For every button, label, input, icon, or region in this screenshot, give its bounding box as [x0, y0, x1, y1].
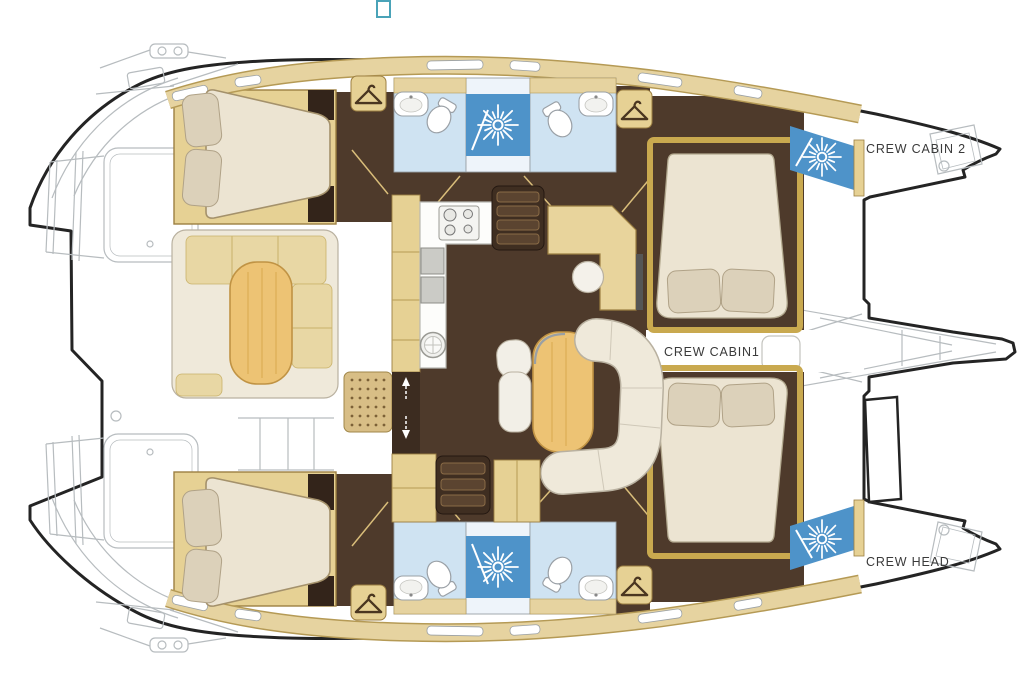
pillow: [721, 383, 775, 428]
pillow: [182, 149, 223, 208]
stool: [573, 262, 604, 293]
anchor-locker-outline: [865, 397, 901, 502]
cockpit-table: [230, 262, 292, 384]
pillow: [667, 383, 721, 428]
mast-icon: [377, 1, 390, 17]
crew-cabin-2-label: CREW CABIN 2: [866, 142, 966, 156]
pillow: [181, 92, 222, 147]
sink-icon: [394, 576, 428, 600]
starboard-companionway-stairs: [436, 456, 490, 514]
fridge-icon: [421, 248, 444, 274]
shower-cell: [466, 536, 530, 598]
pillow: [667, 269, 721, 314]
sink-icon: [394, 92, 428, 116]
pillow: [181, 548, 222, 603]
starboard-bathrooms: [394, 522, 616, 614]
pillow: [182, 489, 223, 548]
port-companionway-stairs: [492, 186, 544, 250]
deck-grate-icon: [344, 372, 392, 432]
sink-icon: [579, 92, 613, 116]
shower-cell: [466, 94, 530, 156]
round-sink-icon: [421, 333, 446, 358]
desk-edge: [636, 254, 643, 310]
salon: [392, 186, 662, 522]
fridge-icon: [421, 277, 444, 303]
sink-icon: [579, 576, 613, 600]
crew-head-label: CREW HEAD: [866, 555, 950, 569]
port-bathrooms: [394, 78, 616, 172]
catamaran-floor-plan: CREW CABIN 2 CREW CABIN1 CREW HEAD: [0, 0, 1024, 696]
floor-plan-svg: CREW CABIN 2 CREW CABIN1 CREW HEAD: [0, 0, 1024, 696]
crew-cabin-1-label: CREW CABIN1: [664, 345, 760, 359]
pillow: [721, 269, 775, 314]
dining-chair: [495, 339, 532, 432]
stove-icon: [439, 206, 479, 240]
